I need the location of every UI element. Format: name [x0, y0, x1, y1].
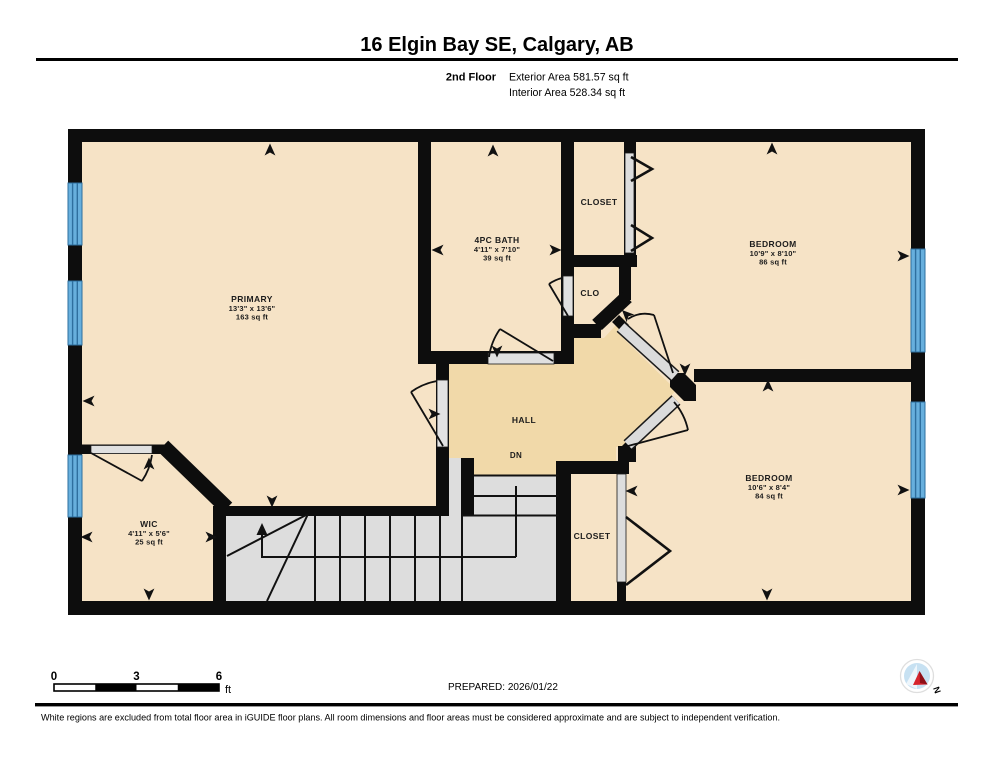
svg-text:ft: ft	[225, 684, 231, 696]
svg-text:25 sq ft: 25 sq ft	[135, 538, 163, 547]
svg-text:BEDROOM: BEDROOM	[745, 473, 792, 483]
svg-text:0: 0	[51, 671, 57, 683]
svg-text:Interior Area 528.34 sq ft: Interior Area 528.34 sq ft	[509, 87, 625, 99]
svg-text:CLO: CLO	[580, 288, 599, 298]
svg-text:2nd Floor: 2nd Floor	[446, 72, 497, 84]
svg-text:CLOSET: CLOSET	[574, 531, 611, 541]
svg-text:BEDROOM: BEDROOM	[749, 239, 796, 249]
svg-text:WIC: WIC	[140, 519, 158, 529]
svg-text:6: 6	[216, 671, 222, 683]
svg-text:4PC BATH: 4PC BATH	[474, 235, 519, 245]
svg-text:163 sq ft: 163 sq ft	[236, 313, 269, 322]
svg-text:16 Elgin Bay SE, Calgary, AB: 16 Elgin Bay SE, Calgary, AB	[360, 34, 633, 56]
svg-text:CLOSET: CLOSET	[581, 197, 618, 207]
svg-text:84 sq ft: 84 sq ft	[755, 492, 783, 501]
svg-text:PREPARED: 2026/01/22: PREPARED: 2026/01/22	[448, 682, 558, 693]
svg-text:Exterior Area 581.57 sq ft: Exterior Area 581.57 sq ft	[509, 72, 629, 84]
svg-text:HALL: HALL	[512, 415, 536, 425]
svg-text:86 sq ft: 86 sq ft	[759, 258, 787, 267]
svg-text:PRIMARY: PRIMARY	[231, 294, 273, 304]
svg-text:White regions are excluded fro: White regions are excluded from total fl…	[41, 713, 780, 723]
svg-text:39 sq ft: 39 sq ft	[483, 254, 511, 263]
svg-text:3: 3	[133, 671, 139, 683]
svg-text:DN: DN	[510, 451, 522, 460]
